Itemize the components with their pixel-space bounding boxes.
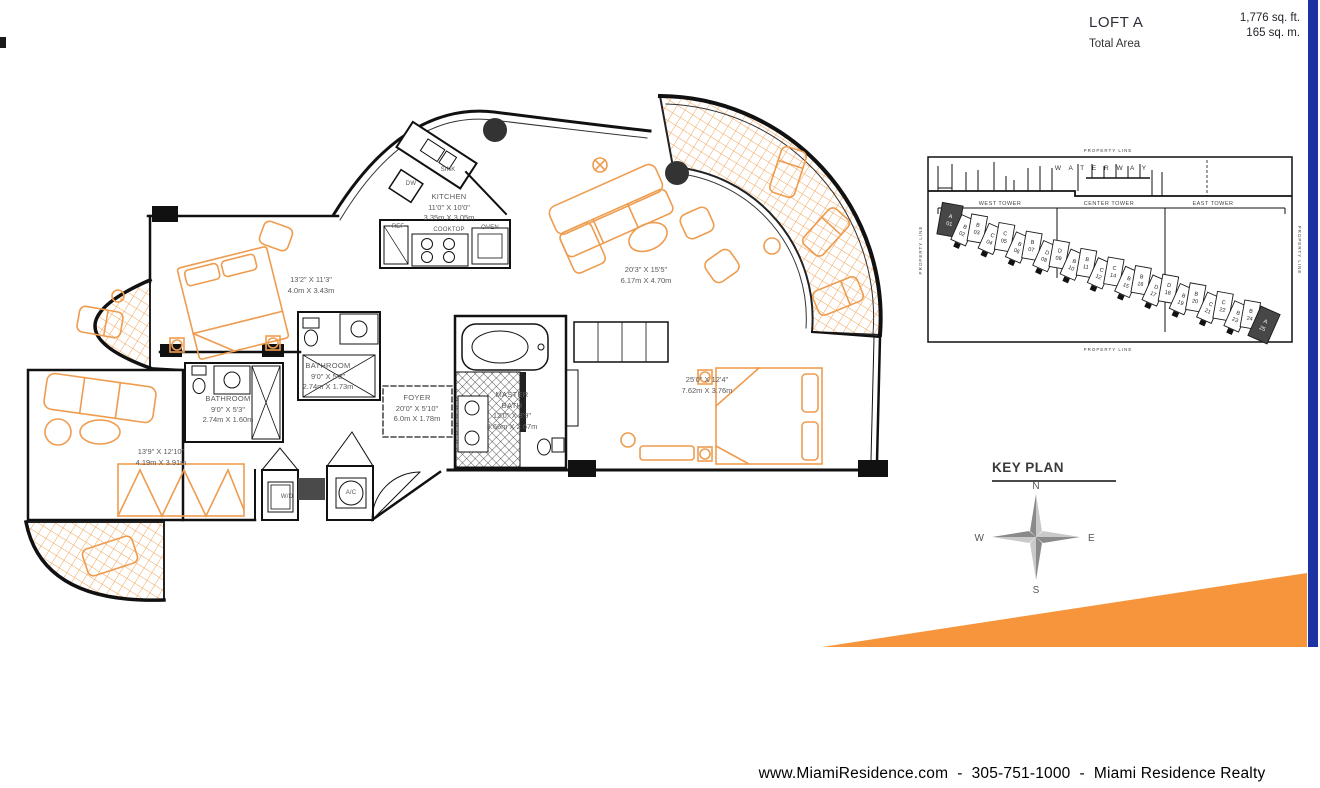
master-closet: [566, 322, 668, 426]
room-label-foyer: FOYER 20'0" X 5'10" 6.0m X 1.78m: [394, 393, 441, 425]
property-line-right: PROPERTY LINE: [1297, 226, 1302, 275]
svg-text:09: 09: [1055, 255, 1062, 262]
area-sqft: 1,776 sq. ft.: [1240, 11, 1300, 26]
footer-contact: www.MiamiResidence.com - 305-751-1000 - …: [759, 765, 1266, 783]
keyplan-unit-chain: A01B02B03C04C05B06B07D08D09B10B11C12C14B…: [937, 202, 1280, 343]
room-label-bathroom1: BATHROOM 9'0" X 5'8" 2.74m X 1.73m: [303, 361, 354, 393]
svg-text:24: 24: [1246, 316, 1253, 323]
svg-text:14: 14: [1110, 273, 1117, 280]
floor-plan-drawing: PROPERTY LINE PROPERTY LINE PROPERTY LIN…: [0, 0, 1320, 788]
fixture-label-cooktop: COOKTOP: [433, 227, 464, 233]
svg-text:11: 11: [1082, 264, 1089, 271]
svg-text:22: 22: [1219, 307, 1226, 314]
utility-closets: [262, 432, 373, 520]
east-tower-label: EAST TOWER: [1192, 201, 1233, 207]
west-tower-label: WEST TOWER: [979, 201, 1022, 207]
svg-text:20: 20: [1191, 298, 1198, 305]
room-label-bedroom2: 13'2" X 11'3" 4.0m X 3.43m: [288, 275, 335, 296]
svg-text:18: 18: [1164, 290, 1171, 297]
brand-stripe: [1308, 0, 1318, 647]
floorplan-group: [26, 96, 888, 600]
center-tower-label: CENTER TOWER: [1084, 201, 1134, 207]
fixture-label-oven: OVEN: [481, 225, 499, 231]
room-label-kitchen: KITCHEN 11'0" X 10'0" 3.35m X 3.05m: [424, 192, 475, 224]
area-sqm: 165 sq. m.: [1240, 26, 1300, 41]
property-line-left: PROPERTY LINE: [918, 226, 923, 275]
fixture-label-dw: DW: [406, 181, 416, 187]
compass-s: S: [1033, 585, 1040, 596]
plan-header: LOFT A Total Area: [1089, 14, 1143, 50]
balcony-bottom-left: [26, 522, 164, 600]
svg-text:05: 05: [1000, 238, 1007, 245]
compass-rose: N S W E: [975, 481, 1095, 596]
svg-text:01: 01: [946, 221, 953, 228]
scan-artifact: [0, 37, 6, 48]
svg-text:03: 03: [973, 230, 980, 237]
accent-triangle: [822, 573, 1307, 647]
waterway-label: W A T E R W A Y: [1055, 165, 1149, 172]
compass-n: N: [1032, 481, 1039, 492]
page-subtitle: Total Area: [1089, 38, 1143, 50]
entry-door: [372, 472, 420, 520]
svg-text:16: 16: [1137, 281, 1144, 288]
keyplan-title: KEY PLAN: [992, 460, 1116, 482]
compass-w: W: [975, 533, 985, 544]
column-dot: [483, 118, 507, 142]
room-label-living: 20'3" X 15'5" 6.17m X 4.70m: [621, 265, 672, 286]
compass-e: E: [1088, 533, 1095, 544]
fixture-label-sink: SINK: [441, 167, 456, 173]
keyplan-group: PROPERTY LINE PROPERTY LINE PROPERTY LIN…: [918, 148, 1302, 352]
room-label-master-bath: MASTER BATH 12'0" X 8'9" 3.66m X 2.67m: [487, 390, 538, 432]
column-dot: [665, 161, 689, 185]
svg-text:07: 07: [1028, 247, 1035, 254]
brochure-page: PROPERTY LINE PROPERTY LINE PROPERTY LIN…: [0, 0, 1320, 788]
property-line-top: PROPERTY LINE: [1084, 148, 1133, 153]
page-title: LOFT A: [1089, 14, 1143, 31]
fixture-label-wd: W/D: [281, 494, 293, 500]
fixture-label-ref: REF: [392, 224, 405, 230]
property-line-bottom: PROPERTY LINE: [1084, 347, 1133, 352]
fixture-label-ac: A/C: [346, 490, 357, 496]
room-label-bathroom2: BATHROOM 9'0" X 5'3" 2.74m X 1.60m: [203, 394, 254, 426]
room-label-bedroom3: 13'9" X 12'10" 4.19m X 3.91m: [136, 447, 187, 468]
plan-area: 1,776 sq. ft. 165 sq. m.: [1240, 11, 1300, 41]
room-label-master-bedroom: 25'0" X 12'4" 7.62m X 3.76m: [682, 375, 733, 396]
